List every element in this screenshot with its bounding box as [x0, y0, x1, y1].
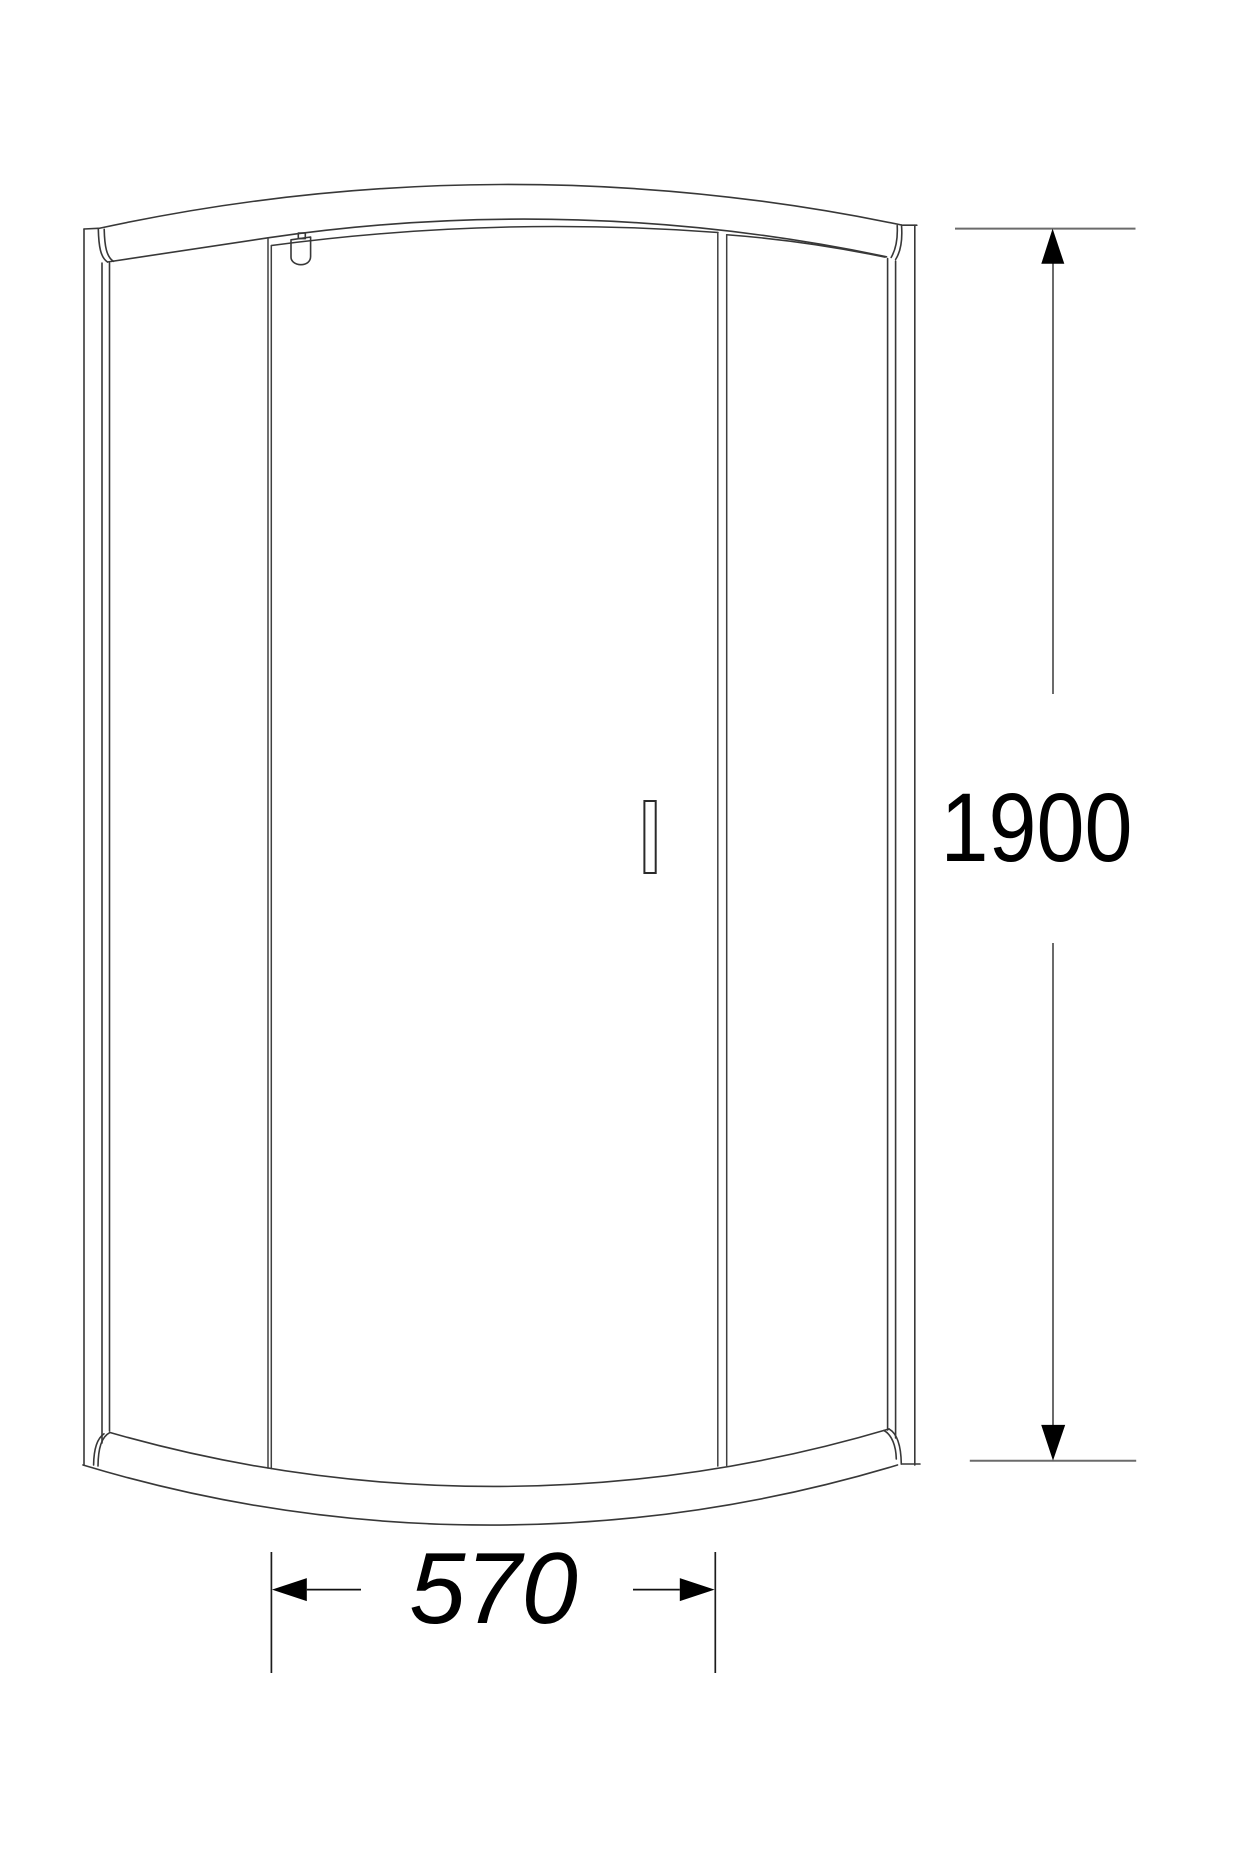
- svg-text:570: 570: [409, 1533, 578, 1645]
- svg-text:1900: 1900: [941, 773, 1133, 882]
